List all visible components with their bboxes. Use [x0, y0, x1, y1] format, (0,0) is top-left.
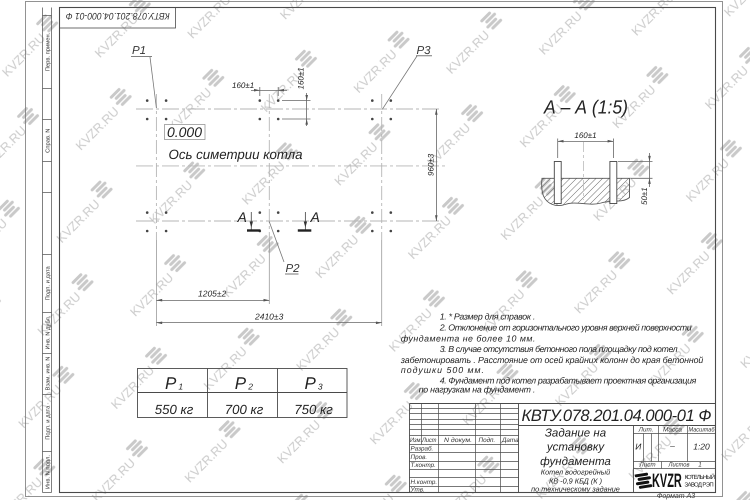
svg-text:P: P	[165, 374, 177, 393]
svg-text:750 кг: 750 кг	[294, 402, 333, 417]
svg-text:–: –	[669, 441, 675, 451]
svg-text:P2: P2	[286, 263, 301, 275]
svg-text:Подп. и дата: Подп. и дата	[46, 265, 52, 300]
svg-text:Подп. и дата: Подп. и дата	[46, 405, 52, 440]
svg-text:фундамента не более 10 мм.: фундамента не более 10 мм.	[401, 333, 535, 343]
svg-text:2. Отклонение от горизонтал: 2. Отклонение от горизонтального уровня …	[439, 323, 692, 333]
svg-text:КОТЕЛЬНЫЙ: КОТЕЛЬНЫЙ	[685, 473, 716, 481]
svg-text:по техническому задание: по техническому задание	[531, 485, 620, 494]
svg-text:50±1: 50±1	[640, 187, 649, 205]
svg-text:Масса: Масса	[663, 427, 682, 434]
svg-text:Лит.: Лит.	[638, 427, 654, 434]
svg-text:Формат А3: Формат А3	[657, 493, 695, 500]
svg-text:Т.контр.: Т.контр.	[411, 462, 436, 469]
svg-text:1:20: 1:20	[693, 442, 710, 452]
svg-text:забетонировать . Расстояние: забетонировать . Расстояние от осей край…	[400, 355, 703, 365]
svg-text:2: 2	[247, 382, 253, 392]
svg-text:установку: установку	[546, 442, 606, 454]
svg-text:ЗАВОД РЭП: ЗАВОД РЭП	[685, 481, 714, 488]
svg-text:Инв. N подл.: Инв. N подл.	[46, 455, 52, 489]
svg-text:KVZR: KVZR	[652, 470, 682, 492]
svg-text:КВТУ.078.201.04.000-01 Ф: КВТУ.078.201.04.000-01 Ф	[65, 10, 169, 21]
svg-text:700 кг: 700 кг	[225, 402, 264, 417]
svg-text:160±1: 160±1	[232, 81, 254, 90]
svg-text:N докум.: N докум.	[444, 437, 472, 444]
svg-text:А: А	[310, 209, 320, 225]
svg-text:Взам. инв. N: Взам. инв. N	[46, 357, 52, 391]
svg-text:КВТУ.078.201.04.000-01 Ф: КВТУ.078.201.04.000-01 Ф	[522, 407, 712, 425]
svg-text:А – А (1:5): А – А (1:5)	[543, 98, 628, 119]
svg-text:Инв. N дубл.: Инв. N дубл.	[45, 315, 52, 349]
svg-text:P: P	[305, 374, 317, 393]
svg-text:1: 1	[698, 461, 702, 468]
svg-text:Справ. N: Справ. N	[45, 129, 52, 153]
svg-text:Задание на: Задание на	[545, 427, 606, 439]
svg-text:Лист: Лист	[638, 461, 655, 468]
svg-text:Дата: Дата	[501, 437, 519, 444]
svg-text:P3: P3	[417, 45, 432, 57]
svg-text:И: И	[635, 442, 642, 452]
svg-text:0.000: 0.000	[167, 124, 202, 140]
svg-text:Ось симетрии котла: Ось симетрии котла	[169, 147, 303, 162]
svg-text:Утв.: Утв.	[410, 486, 425, 493]
svg-text:160±1: 160±1	[297, 67, 306, 89]
svg-text:P1: P1	[132, 45, 146, 57]
svg-text:P: P	[235, 374, 247, 393]
svg-text:Изм.Лист: Изм.Лист	[410, 437, 437, 444]
svg-text:Листов: Листов	[668, 461, 691, 468]
svg-text:Перв. примен.: Перв. примен.	[46, 32, 52, 71]
svg-text:3: 3	[318, 382, 323, 392]
svg-text:1. * Размер для справок .: 1. * Размер для справок .	[440, 312, 536, 322]
svg-text:3. В случае отсутствия бет: 3. В случае отсутствия бетонного пола пл…	[440, 344, 678, 354]
svg-text:960±3: 960±3	[427, 153, 436, 176]
svg-text:1205±2: 1205±2	[198, 289, 227, 299]
svg-text:фундамента: фундамента	[540, 456, 611, 468]
svg-text:2410±3: 2410±3	[254, 311, 284, 321]
svg-text:Разраб.: Разраб.	[411, 445, 434, 452]
svg-text:Подп.: Подп.	[479, 437, 496, 444]
svg-text:1: 1	[178, 382, 183, 392]
svg-text:Н.контр.: Н.контр.	[411, 479, 438, 486]
svg-text:А: А	[237, 209, 247, 225]
svg-text:160±1: 160±1	[574, 131, 596, 140]
svg-text:550 кг: 550 кг	[155, 402, 194, 417]
svg-text:Пров.: Пров.	[411, 454, 428, 461]
svg-text:Масштаб: Масштаб	[689, 427, 715, 434]
svg-text:подушки 500 мм.: подушки 500 мм.	[401, 365, 484, 375]
svg-text:Котел водогрейный: Котел водогрейный	[541, 468, 610, 477]
svg-text:по нагрузкам на фундамент .: по нагрузкам на фундамент .	[419, 385, 536, 395]
